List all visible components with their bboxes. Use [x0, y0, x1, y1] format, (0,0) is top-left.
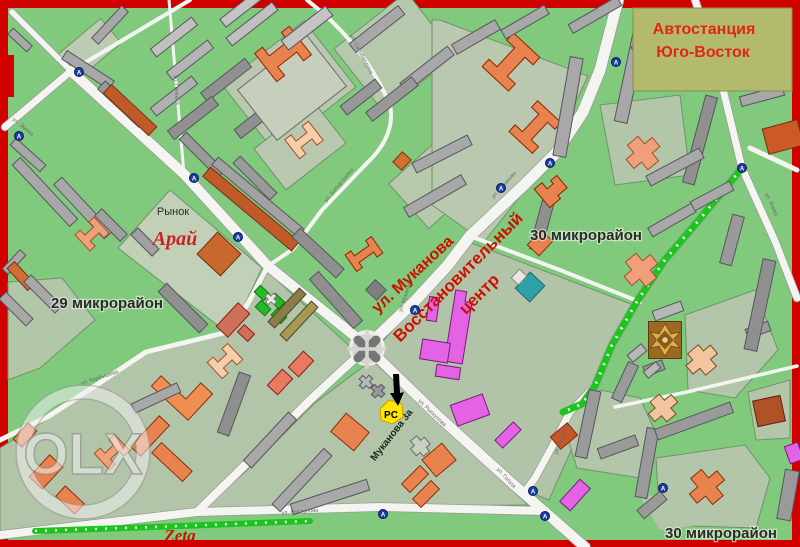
svg-text:Рынок: Рынок	[157, 206, 189, 218]
svg-text:Zeta: Zeta	[163, 526, 196, 545]
svg-text:A: A	[543, 515, 548, 521]
svg-text:A: A	[740, 167, 745, 173]
svg-text:A: A	[614, 61, 619, 67]
svg-text:A: A	[236, 236, 241, 242]
svg-text:30 микрорайон: 30 микрорайон	[530, 227, 642, 244]
svg-text:A: A	[77, 71, 82, 77]
svg-text:Юго-Восток: Юго-Восток	[656, 44, 750, 61]
svg-text:A: A	[381, 513, 386, 519]
svg-text:30 микрорайон: 30 микрорайон	[665, 525, 777, 542]
svg-text:A: A	[548, 162, 553, 168]
svg-text:A: A	[499, 187, 504, 193]
svg-text:A: A	[17, 135, 22, 141]
svg-text:A: A	[531, 490, 536, 496]
svg-text:A: A	[661, 487, 666, 493]
svg-text:Автостанция: Автостанция	[653, 21, 756, 38]
svg-text:PC: PC	[384, 410, 398, 421]
svg-text:A: A	[413, 309, 418, 315]
svg-text:OLX: OLX	[23, 422, 143, 487]
svg-text:29 микрорайон: 29 микрорайон	[51, 295, 163, 312]
svg-text:A: A	[192, 177, 197, 183]
svg-text:Арай: Арай	[151, 228, 197, 250]
